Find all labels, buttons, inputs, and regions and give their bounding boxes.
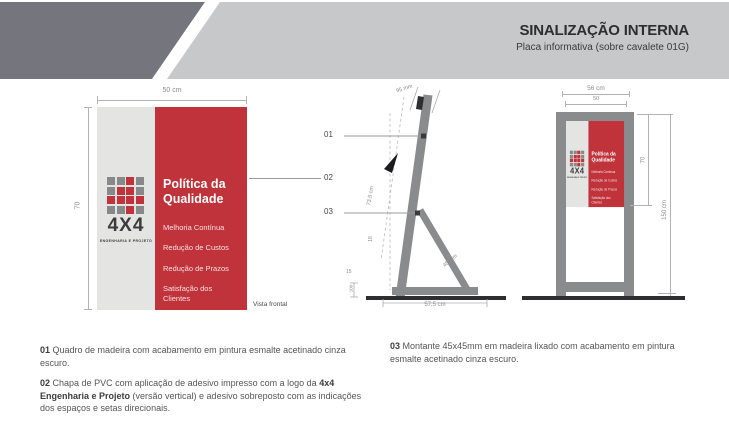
mounted-placard-height-label: 70 — [640, 157, 646, 164]
logo-tagline: ENGENHARIA E PROJETO — [97, 239, 155, 243]
dim-tick — [562, 91, 563, 97]
logo-grid-cell — [570, 159, 573, 162]
placard-item: Redução de Custos — [163, 243, 238, 252]
placard-item: Satisfação dos Clientes — [163, 284, 238, 303]
placard-mounted-view: 4X4 ENGENHARIA E PROJETO Política da Qua… — [566, 121, 624, 207]
page-title: SINALIZAÇÃO INTERNA — [516, 22, 689, 39]
dim-tick — [629, 91, 630, 97]
logo-grid-cell — [136, 206, 144, 214]
logo-grid-cell — [574, 159, 577, 162]
front-height-dim-label: 70 — [74, 202, 81, 210]
note-03-text: Montante 45x45mm em madeira lixado com a… — [390, 341, 675, 364]
note-02: 02 Chapa de PVC com aplicação de adesivo… — [40, 377, 362, 415]
logo-grid-cell — [581, 155, 584, 158]
spec-sheet-page: SINALIZAÇÃO INTERNA Placa informativa (s… — [0, 0, 729, 442]
note-01-number: 01 — [40, 345, 50, 355]
ground-line-mounted-view — [522, 296, 685, 300]
logo-grid-cell — [126, 206, 134, 214]
logo-tagline: ENGENHARIA E PROJETO — [566, 177, 588, 179]
dim-tick — [565, 101, 566, 107]
dim-tick — [246, 96, 247, 104]
note-02-number: 02 — [40, 378, 50, 388]
note-03: 03 Montante 45x45mm em madeira lixado co… — [390, 340, 700, 365]
mounted-placard-height-line — [648, 114, 649, 205]
logo-grid-cell — [581, 163, 584, 166]
side-upper-dim-label: 18 — [368, 236, 374, 242]
logo-grid — [570, 151, 584, 166]
placard-item: Redução de Prazos — [592, 187, 621, 191]
logo-wordmark: 4X4 — [97, 215, 155, 237]
easel-foot-bar — [392, 287, 478, 295]
logo-grid-cell — [107, 196, 115, 204]
dim-tick — [626, 101, 627, 107]
note-02-text-before: Chapa de PVC com aplicação de adesivo im… — [53, 378, 320, 388]
placard-heading: Política da Qualidade — [592, 151, 622, 164]
slope-arrow-marker — [384, 153, 398, 173]
logo-grid-cell — [117, 206, 125, 214]
mounted-total-height-line — [670, 114, 671, 296]
placard-item: Melhoria Contínua — [163, 223, 238, 232]
mounted-inner-width-label: 50 — [565, 96, 627, 102]
logo-grid-cell — [126, 177, 134, 185]
logo-grid-cell — [577, 151, 580, 154]
logo-grid-cell — [577, 159, 580, 162]
placard-mini: 4X4 ENGENHARIA E PROJETO Política da Qua… — [566, 121, 624, 207]
placard-item: Redução de Prazos — [163, 264, 238, 273]
placard-item-list: Melhoria Contínua Redução de Custos Redu… — [163, 223, 238, 314]
logo-grid-cell — [574, 151, 577, 154]
frame-left-post — [556, 112, 566, 297]
dim-tick — [97, 96, 98, 104]
placard-item: Redução de Custos — [592, 179, 621, 183]
placard-heading: Política da Qualidade — [163, 177, 241, 207]
logo-grid-cell — [136, 177, 144, 185]
logo-grid-cell — [577, 163, 580, 166]
logo-grid-cell — [117, 196, 125, 204]
logo-grid — [107, 177, 144, 214]
logo-grid-cell — [574, 155, 577, 158]
side-lower-dim-label: 15 — [346, 269, 352, 275]
note-01: 01 Quadro de madeira com acabamento em p… — [40, 344, 362, 369]
placard-front-view: 4X4 ENGENHARIA E PROJETO Política da Qua… — [97, 107, 247, 310]
logo-grid-cell — [126, 187, 134, 195]
easel-rear-leg — [417, 208, 471, 293]
front-width-dim-line — [97, 100, 247, 101]
mounted-inner-width-line — [565, 104, 627, 105]
mounted-total-height-label: 150 cm — [662, 200, 668, 220]
logo-grid-cell — [581, 159, 584, 162]
title-block: SINALIZAÇÃO INTERNA Placa informativa (s… — [516, 22, 689, 53]
logo-grid-cell — [581, 151, 584, 154]
logo-grid-cell — [136, 196, 144, 204]
logo-grid-cell — [107, 206, 115, 214]
logo-grid-cell — [126, 196, 134, 204]
logo-grid-cell — [107, 177, 115, 185]
logo-grid-cell — [570, 151, 573, 154]
logo-wordmark: 4X4 — [566, 167, 588, 176]
page-subtitle: Placa informativa (sobre cavalete 01G) — [516, 42, 689, 53]
placard-item: Melhoria Contínua — [592, 170, 621, 174]
logo-grid-cell — [570, 163, 573, 166]
front-height-dim-line — [88, 107, 89, 310]
dim-tick — [84, 107, 92, 108]
front-width-dim-label: 50 cm — [97, 87, 247, 94]
logo-grid-cell — [574, 163, 577, 166]
side-view-drawing — [320, 85, 520, 317]
note-01-text: Quadro de madeira com acabamento em pint… — [40, 345, 346, 368]
logo-grid-cell — [117, 187, 125, 195]
logo-grid-cell — [107, 187, 115, 195]
callout-03-anchor-dot — [415, 211, 420, 216]
top-dim-extension-line — [432, 90, 440, 113]
logo-grid-cell — [117, 177, 125, 185]
note-03-number: 03 — [390, 341, 400, 351]
callout-01-anchor-dot — [421, 134, 426, 139]
frame-top-bar — [556, 112, 634, 121]
side-foot-height-label: 100 — [348, 285, 353, 293]
dim-extension-line — [637, 114, 673, 115]
mounted-outer-width-line — [562, 94, 630, 95]
logo-grid-cell — [570, 155, 573, 158]
ground-line-side-view — [366, 296, 506, 300]
front-view-caption: Vista frontal — [253, 301, 287, 308]
logo-grid-cell — [136, 187, 144, 195]
incline-reference-dashed-line — [381, 97, 404, 260]
dim-tick — [658, 293, 676, 294]
easel-board-side — [396, 95, 433, 299]
dim-tick — [630, 205, 652, 206]
callout-02-leader-line — [249, 178, 321, 179]
dim-tick — [84, 309, 92, 310]
logo-grid-cell — [577, 155, 580, 158]
placard-item: Satisfação dos Clientes — [592, 196, 621, 204]
placard-item-list: Melhoria Contínua Redução de Custos Redu… — [592, 170, 621, 209]
side-base-dim-label: 57,5 cm — [400, 302, 470, 308]
mounted-outer-width-label: 56 cm — [562, 85, 630, 92]
frame-bottom-crossbar — [556, 282, 634, 292]
